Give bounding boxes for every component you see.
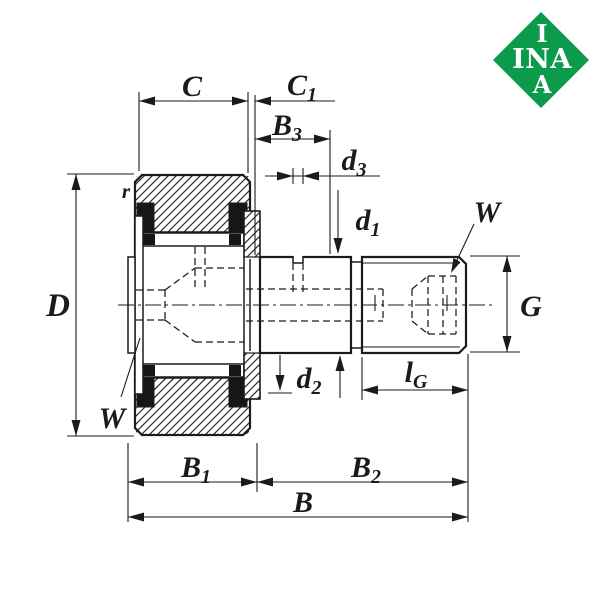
dim-label-w-stud: W: [474, 196, 503, 229]
roller-cap-icon: [143, 234, 155, 245]
dim-label-g: G: [520, 290, 542, 323]
cam-follower-technical-drawing: C C1 B3 d3 d1 d2 D r W W G lG B1 B2 B I …: [0, 0, 600, 600]
side-washer-hatch-top: [244, 211, 260, 257]
needle-rollers-bottom: [142, 364, 244, 377]
roller-cap-icon: [143, 365, 155, 376]
roller-cap-icon: [229, 234, 241, 245]
needle-rollers-top: [142, 233, 244, 246]
dim-label-b: B: [292, 486, 313, 519]
ina-logo-letter-a: A: [532, 70, 552, 99]
roller-cap-icon: [229, 365, 241, 376]
dim-label-w-roller: W: [99, 402, 128, 435]
dim-label-d-outer: D: [45, 288, 70, 324]
drawing-canvas: C C1 B3 d3 d1 d2 D r W W G lG B1 B2 B I …: [0, 0, 600, 600]
dim-label-r: r: [122, 179, 131, 203]
dim-label-c: C: [182, 70, 203, 103]
side-washer-hatch-bottom: [244, 353, 260, 399]
